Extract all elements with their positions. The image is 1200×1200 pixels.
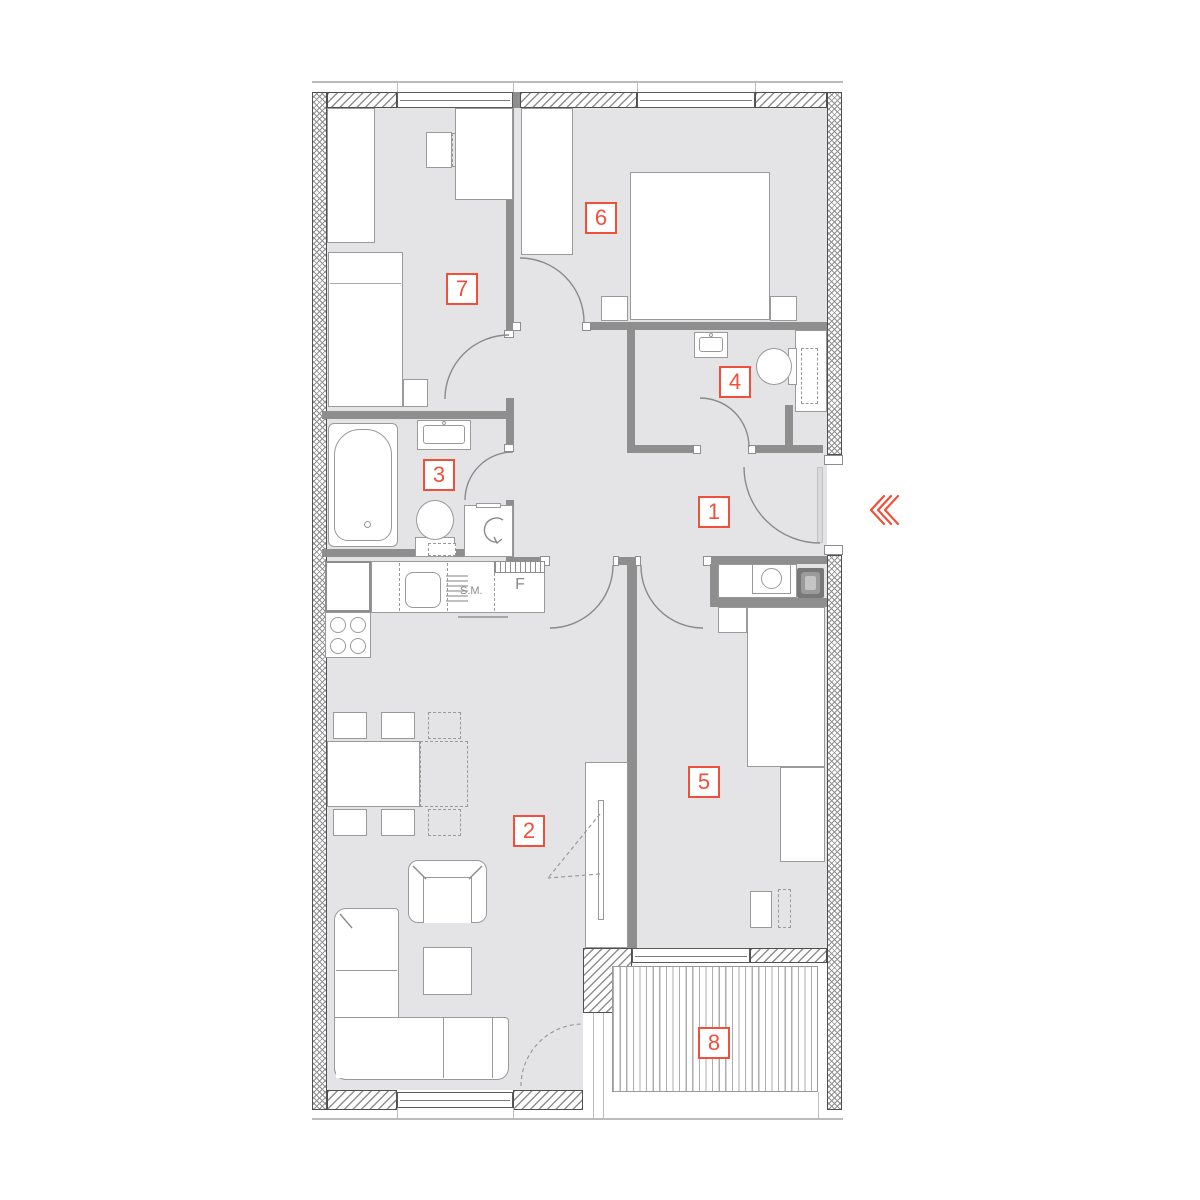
room-label-8: 8 <box>698 1027 730 1059</box>
desk <box>780 767 825 862</box>
exterior-wall-top-1 <box>327 92 397 108</box>
sink-basin <box>699 337 723 352</box>
side-table <box>423 947 472 995</box>
sill-tick <box>513 1108 514 1118</box>
wall-hall-room5 <box>711 556 827 564</box>
dishwasher-mark <box>458 616 508 618</box>
balcony-edge-left <box>603 1013 604 1119</box>
burner <box>350 638 366 654</box>
wardrobe <box>327 108 375 243</box>
door-frame <box>504 330 514 338</box>
entrance-arrow-icon <box>871 496 884 524</box>
sofa-cushion-line <box>336 970 397 971</box>
tv-board <box>585 762 628 948</box>
sink-tap <box>709 333 713 337</box>
chair-dashed <box>428 809 461 836</box>
sill-tick <box>397 82 398 92</box>
room-number: 1 <box>708 501 720 523</box>
entrance-frame-bottom <box>824 545 843 555</box>
nightstand <box>770 296 797 321</box>
toilet-bowl <box>416 500 454 540</box>
sill-tick <box>513 82 514 92</box>
room5-niche-wall-bottom <box>710 598 827 607</box>
room-number: 3 <box>433 464 445 486</box>
window-balcony <box>632 948 750 963</box>
room-number: 8 <box>708 1032 720 1054</box>
fridge-label: F <box>505 576 535 594</box>
sofa-corner-patch <box>336 1018 397 1078</box>
exterior-wall-top-3 <box>755 92 827 108</box>
nightstand <box>403 379 428 407</box>
chair <box>381 809 415 836</box>
double-bed <box>630 172 770 320</box>
vent-shaft-core <box>805 576 816 590</box>
fridge-hatch-strip <box>494 561 545 573</box>
room-number: 7 <box>456 278 468 300</box>
desk <box>455 108 513 200</box>
wardrobe <box>747 607 825 767</box>
wardrobe <box>521 108 573 255</box>
chair-dashed <box>778 889 791 928</box>
wall-hall-wc <box>627 330 635 453</box>
chair-dashed <box>428 712 461 739</box>
balcony-door-frame <box>593 1013 594 1119</box>
bed <box>328 252 403 407</box>
wall-room7-bath <box>322 411 506 419</box>
door-frame <box>693 445 701 454</box>
dining-table <box>327 741 420 807</box>
chair <box>750 891 772 928</box>
exterior-wall-top-2 <box>520 92 637 108</box>
window-bottom <box>397 1092 513 1108</box>
room-label-6: 6 <box>585 202 617 234</box>
chair <box>333 712 367 739</box>
sill-tick <box>637 82 638 92</box>
armchair-seat <box>423 877 472 923</box>
kitchen-corner-cabinet <box>325 561 371 612</box>
sofa-armrest-line <box>492 1018 493 1078</box>
dishwasher-label: S.M. <box>460 585 502 597</box>
nightstand <box>601 296 628 321</box>
door-frame <box>582 322 591 331</box>
burner <box>330 617 346 633</box>
tv <box>598 800 604 920</box>
room-number: 5 <box>698 771 710 793</box>
toilet-bowl <box>756 348 792 385</box>
wall-pier-top <box>513 92 520 108</box>
exterior-wall-bottom-2 <box>513 1090 583 1110</box>
sill-line-bottom <box>312 1118 843 1120</box>
entrance-frame-top <box>824 455 843 465</box>
kitchen-sink <box>405 572 441 608</box>
window-top-right <box>637 92 755 108</box>
sofa-cushion-line <box>443 1018 444 1078</box>
appliance-dial <box>761 568 782 589</box>
door-frame <box>504 444 514 452</box>
washing-machine-top <box>476 503 501 508</box>
wall-wc-bottom-right <box>750 445 823 453</box>
bed-pillow-line <box>330 283 401 284</box>
room-number: 4 <box>729 371 741 393</box>
door-frame <box>613 556 619 566</box>
balcony-wall-right <box>750 948 827 963</box>
chair <box>381 712 415 739</box>
cabinet <box>718 607 747 633</box>
table-extension-dashed <box>420 741 468 807</box>
washing-machine <box>464 505 513 557</box>
room-label-5: 5 <box>688 766 720 798</box>
counter-divider <box>447 563 448 611</box>
room-number: 6 <box>595 207 607 229</box>
entrance-arrow-icon <box>878 496 891 524</box>
bathtub-inner <box>334 429 392 541</box>
room-number: 2 <box>523 820 535 842</box>
burner <box>350 617 366 633</box>
toilet-dashed <box>428 543 456 556</box>
wall-wc-bottom-left <box>635 445 700 453</box>
sill-line-top <box>312 81 843 83</box>
exterior-wall-bottom-1 <box>327 1090 397 1110</box>
room-label-3: 3 <box>423 459 455 491</box>
wall-room7-hall-lower <box>506 398 514 419</box>
bathtub-drain <box>364 521 371 528</box>
shaft-dashed <box>801 348 818 404</box>
chair <box>426 132 452 168</box>
window-top-left <box>397 92 513 108</box>
exterior-wall-right-lower <box>827 555 842 1110</box>
room-label-1: 1 <box>698 496 730 528</box>
wall-room2-room5 <box>627 565 637 948</box>
wall-below-room6 <box>584 322 827 330</box>
exterior-wall-right-upper <box>827 92 842 455</box>
sill-tick <box>397 1108 398 1118</box>
room-label-7: 7 <box>446 273 478 305</box>
floor-plan-canvas: S.M. F 1 2 3 4 5 6 7 8 <box>0 0 1200 1200</box>
door-frame <box>748 445 756 454</box>
sink-basin <box>423 425 465 444</box>
burner <box>330 638 346 654</box>
counter-divider <box>399 563 400 611</box>
sill-tick <box>755 82 756 92</box>
chair <box>333 809 367 836</box>
entrance-arrow-icon <box>885 496 898 524</box>
balcony-edge-right <box>818 1092 819 1119</box>
wall-wc-niche-stub <box>785 405 793 445</box>
room-label-4: 4 <box>719 366 751 398</box>
sink-tap <box>442 421 446 425</box>
entrance-door-leaf <box>817 467 823 543</box>
room-label-2: 2 <box>513 815 545 847</box>
